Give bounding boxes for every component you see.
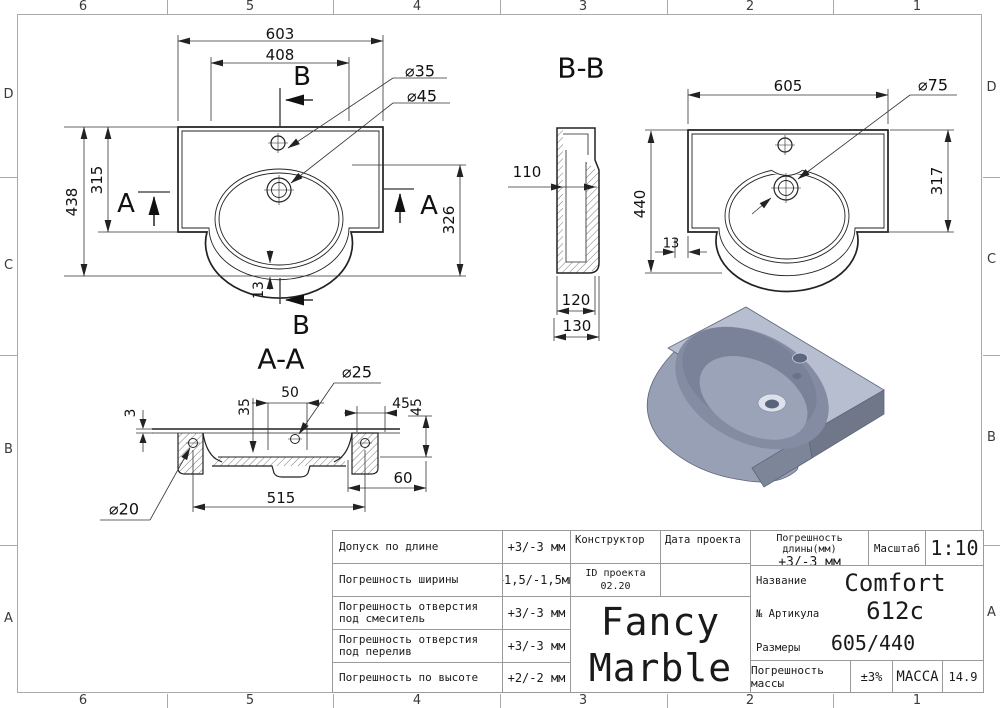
length-tolerance-label: Погрешность длины(мм) bbox=[751, 531, 868, 555]
empty-cell bbox=[661, 564, 751, 597]
col-label-2-top: 2 bbox=[735, 0, 765, 14]
article-label: № Артикула bbox=[756, 608, 819, 620]
scale-value-cell: 1:10 bbox=[926, 531, 984, 566]
mass-tolerance-label-cell: Погрешность массы bbox=[751, 661, 851, 693]
product-info-cell: Название Comfort 612c № Артикула Размеры… bbox=[751, 566, 984, 661]
tolerance-label: Погрешность по высоте bbox=[333, 663, 503, 693]
col-label-1-bottom: 1 bbox=[902, 694, 932, 708]
tolerance-label: Погрешность отверстия под перелив bbox=[333, 630, 503, 663]
brand-line2: Marble bbox=[571, 645, 750, 691]
col-label-4-bottom: 4 bbox=[402, 694, 432, 708]
project-date-cell: Дата проекта bbox=[661, 531, 751, 564]
tolerance-value: +3/-3 мм bbox=[503, 531, 571, 564]
row-label-b-left: B bbox=[1, 442, 16, 458]
row-label-c-right: C bbox=[984, 252, 999, 268]
col-label-1-top: 1 bbox=[902, 0, 932, 14]
project-id-cell: ID проекта 02.20 bbox=[571, 564, 661, 597]
project-id-label: ID проекта bbox=[571, 567, 660, 580]
row-label-a-left: A bbox=[1, 611, 16, 627]
col-label-6-top: 6 bbox=[68, 0, 98, 14]
brand-logo: Fancy Marble bbox=[571, 597, 751, 693]
col-label-5-bottom: 5 bbox=[235, 694, 265, 708]
sizes-value: 605/440 bbox=[813, 631, 933, 655]
col-label-4-top: 4 bbox=[402, 0, 432, 14]
tolerance-label: Допуск по длине bbox=[333, 531, 503, 564]
sizes-label: Размеры bbox=[756, 642, 800, 654]
tolerance-value: +2/-2 мм bbox=[503, 663, 571, 693]
product-name: Comfort 612c bbox=[809, 569, 981, 625]
length-tolerance-cell: Погрешность длины(мм) +3/-3 мм bbox=[751, 531, 869, 566]
length-tolerance-value: +3/-3 мм bbox=[751, 555, 868, 566]
tolerance-value: +1,5/-1,5мм bbox=[503, 564, 571, 597]
col-label-3-top: 3 bbox=[568, 0, 598, 14]
tolerance-label: Погрешность отверстия под смеситель bbox=[333, 597, 503, 630]
drawing-sheet: 603 408 ⌀35 ⌀45 B B A A 438 315 326 13 bbox=[0, 0, 1000, 708]
scale-label-cell: Масштаб bbox=[869, 531, 926, 566]
name-label: Название bbox=[756, 575, 807, 587]
tolerance-value: +3/-3 мм bbox=[503, 630, 571, 663]
tolerance-value: +3/-3 мм bbox=[503, 597, 571, 630]
row-label-d-left: D bbox=[1, 87, 16, 103]
col-label-2-bottom: 2 bbox=[735, 694, 765, 708]
mass-label-cell: МАССА bbox=[893, 661, 943, 693]
col-label-5-top: 5 bbox=[235, 0, 265, 14]
project-id-value: 02.20 bbox=[571, 580, 660, 593]
row-label-c-left: C bbox=[1, 258, 16, 274]
row-label-a-right: A bbox=[984, 605, 999, 621]
col-label-6-bottom: 6 bbox=[68, 694, 98, 708]
constructor-cell: Конструктор bbox=[571, 531, 661, 564]
mass-value-cell: 14.9 bbox=[943, 661, 984, 693]
brand-line1: Fancy bbox=[571, 599, 750, 645]
row-label-b-right: B bbox=[984, 430, 999, 446]
mass-tolerance-value-cell: ±3% bbox=[851, 661, 893, 693]
row-label-d-right: D bbox=[984, 80, 999, 96]
title-block: Допуск по длине +3/-3 мм Погрешность шир… bbox=[332, 530, 984, 693]
tolerance-label: Погрешность ширины bbox=[333, 564, 503, 597]
col-label-3-bottom: 3 bbox=[568, 694, 598, 708]
